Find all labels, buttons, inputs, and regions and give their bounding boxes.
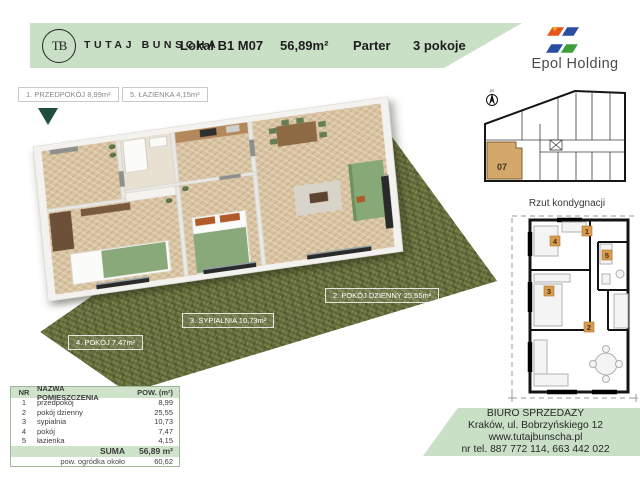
row-nr: 2 [11, 408, 37, 417]
row-area: 8,99 [125, 398, 176, 407]
unit-07-number: 07 [497, 162, 507, 172]
chip-3: 3 [547, 287, 551, 296]
table-header-row: NR NAZWA POMIESZCZENIA POW. (m²) [11, 387, 179, 398]
table-row: 5 łazienka 4,15 [11, 436, 179, 446]
partner-name: Epol Holding [505, 56, 640, 72]
garden-label: pow. ogródka około [37, 457, 125, 466]
table-row: 4 pokój 7,47 [11, 427, 179, 437]
unit-label: Lokal B1 M07 [180, 23, 263, 68]
dining-chair [281, 119, 289, 125]
table-suma-row: SUMA 56,89 m² [11, 446, 179, 457]
dining-chair [318, 121, 326, 127]
label-lazienka: 5. ŁAZIENKA 4,15m² [122, 87, 208, 102]
sofa-pillow [356, 196, 365, 203]
sales-office-title: BIURO SPRZEDAŻY [431, 408, 640, 420]
unit-rooms-label: 3 pokoje [413, 23, 466, 68]
label-pokoj: 4. POKÓJ 7,47m² [68, 335, 143, 350]
svg-text:pn: pn [490, 88, 495, 93]
row-name: łazienka [37, 436, 125, 445]
tb-logo-icon: TB [42, 29, 76, 63]
row-area: 10,73 [125, 417, 176, 426]
label-przedpokoj: 1. PRZEDPOKÓJ 8,99m² [18, 87, 119, 102]
table-row: 3 sypialnia 10,73 [11, 417, 179, 427]
dining-chair [270, 138, 278, 144]
label-sypialnia: 3. SYPIALNIA 10,73m² [182, 313, 274, 328]
north-compass-icon: pn [487, 88, 498, 106]
chip-5: 5 [605, 251, 609, 260]
sales-office-phones: nr tel. 887 772 114, 663 442 022 [431, 444, 640, 456]
unit-detail-plan: 1 4 5 3 2 [502, 212, 638, 404]
unit-area-label: 56,89m² [280, 23, 328, 68]
dining-chair [269, 128, 277, 134]
partner-logo: Epol Holding [505, 25, 640, 75]
bathtub [122, 138, 148, 173]
suma-value: 56,89 m² [125, 446, 176, 456]
col-nr-header: NR [11, 388, 37, 397]
suma-label: SUMA [37, 446, 125, 456]
table-garden-row: pow. ogródka około 60,62 [11, 457, 179, 467]
wardrobe [49, 211, 74, 252]
row-name: przedpokój [37, 398, 125, 407]
row-nr: 5 [11, 436, 37, 445]
dining-chair [296, 117, 304, 123]
entry-direction-icon [38, 108, 58, 125]
dining-chair [319, 131, 327, 137]
col-area-header: POW. (m²) [125, 388, 176, 397]
row-name: pokój [37, 427, 125, 436]
row-area: 4,15 [125, 436, 176, 445]
row-nr: 4 [11, 427, 37, 436]
row-area: 25,55 [125, 408, 176, 417]
row-nr: 3 [11, 417, 37, 426]
table-row: 2 pokój dzienny 25,55 [11, 408, 179, 418]
sales-office-website: www.tutajbunscha.pl [431, 432, 640, 444]
unit-floor-label: Parter [353, 23, 391, 68]
table-row: 1 przedpokój 8,99 [11, 398, 179, 408]
floor-plan-caption: Rzut kondygnacji [492, 198, 640, 209]
row-name: sypialnia [37, 417, 125, 426]
unit-07-highlight [487, 142, 522, 179]
header-banner: TB TUTAJ BUNSCHA Lokal B1 M07 56,89m² Pa… [30, 23, 522, 68]
sales-office-address: Kraków, ul. Bobrzyńskiego 12 [431, 420, 640, 432]
sales-office-card: BIURO SPRZEDAŻY Kraków, ul. Bobrzyńskieg… [423, 408, 640, 456]
building-overview-plan: pn 07 [480, 86, 630, 190]
row-nr: 1 [11, 398, 37, 407]
row-area: 7,47 [125, 427, 176, 436]
label-pokoj-dzienny: 2. POKÓJ DZIENNY 25,55m² [325, 288, 439, 303]
rooms-table: NR NAZWA POMIESZCZENIA POW. (m²) 1 przed… [10, 386, 180, 467]
chip-2: 2 [587, 323, 591, 332]
garden-value: 60,62 [125, 457, 176, 466]
chip-1: 1 [585, 227, 589, 236]
epol-logo-icon [546, 25, 580, 55]
row-name: pokój dzienny [37, 408, 125, 417]
